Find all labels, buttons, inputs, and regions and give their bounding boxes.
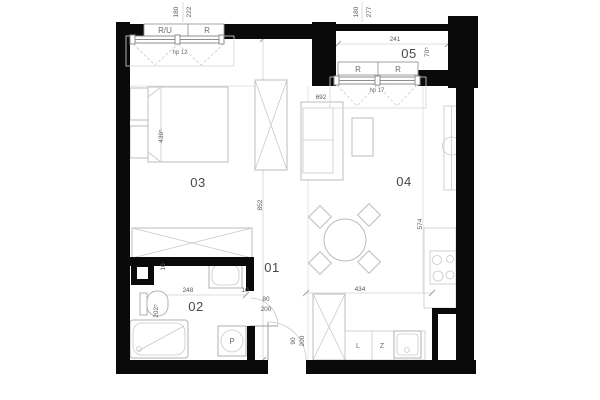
cabinet-l-label: L [356, 343, 360, 350]
room-label-bedroom: 03 [190, 175, 205, 190]
dining-table [324, 219, 366, 261]
room-label-living: 04 [396, 174, 411, 189]
chair [358, 204, 381, 227]
wall-pillar [312, 22, 336, 86]
wall-bottom-b [306, 360, 476, 374]
nightstand-bottom [130, 126, 148, 158]
window2-label-right: R [395, 65, 401, 74]
bedroom-furniture [130, 80, 287, 258]
kitchen-cabinet-tall [313, 294, 345, 360]
room-label-loggia: 05 [401, 46, 416, 61]
door-entry-height: 200 [299, 335, 306, 346]
wall-right [456, 86, 474, 374]
door-entry-width: 90 [290, 337, 297, 345]
kitchen-counter-right [424, 228, 456, 308]
dim-bed: 439⁵ [158, 129, 165, 143]
wall-bath-right-lower [247, 326, 255, 360]
wall-bath-right-upper [246, 257, 254, 291]
nightstand-top [130, 88, 148, 120]
chair [309, 206, 332, 229]
dim-hall-height: 852 [257, 199, 264, 210]
dim-wall-right: 10 [241, 287, 249, 294]
window1-label-right: R [204, 26, 210, 35]
wall-stub-window [418, 70, 460, 86]
dim-living-height: 574 [417, 218, 424, 229]
room-label-bath: 02 [188, 299, 203, 314]
dining-set [309, 204, 381, 275]
window2-dim2: 277 [366, 6, 373, 17]
chair [309, 252, 332, 275]
washing-machine: P [218, 326, 246, 356]
dim-wall-left: 10 [160, 263, 167, 271]
window2-label-left: R [355, 65, 361, 74]
wall-bottom-a [116, 360, 268, 374]
window1-dim1: 180 [173, 6, 180, 17]
shaft-inner [137, 267, 148, 279]
dim-loggia-depth: 70⁵ [424, 47, 431, 57]
window2-dim1: 180 [353, 6, 360, 17]
bed [148, 87, 228, 162]
window-bedroom: R/U R hp 12 180 222 [126, 6, 234, 66]
window2-hp: hp 17 [369, 88, 385, 94]
window1-hp: hp 12 [172, 50, 188, 56]
wall-left [116, 22, 130, 374]
kitchen-sink [394, 331, 421, 358]
wall-loggia-top [336, 24, 450, 31]
cabinet-z-label: Z [380, 343, 385, 350]
dim-bath-width: 248 [183, 287, 194, 294]
window1-label-left: R/U [158, 26, 172, 35]
cabinet-labels: L Z [356, 343, 385, 350]
washer-label: P [229, 337, 234, 346]
dim-kitchen-width: 434 [355, 286, 366, 293]
door-bath-height: 200 [261, 306, 272, 313]
dim-sofa: 692 [316, 94, 327, 101]
sofa [301, 102, 343, 180]
cooktop [430, 251, 456, 284]
floor-plan-drawing: P R/U R [0, 0, 600, 400]
niche-inner [438, 314, 456, 360]
dim-loggia-width: 241 [390, 36, 401, 43]
wall-top-b [224, 24, 312, 39]
side-table [352, 118, 373, 156]
floor-plan: P R/U R [0, 0, 600, 400]
wardrobe-tall [255, 80, 287, 170]
dim-bath-height: 202⁵ [153, 304, 160, 318]
room-label-hall: 01 [264, 260, 279, 275]
window1-dim2: 222 [186, 6, 193, 17]
doors [250, 298, 306, 360]
door-bath-width: 80 [262, 296, 270, 303]
wall-niche-left [432, 308, 438, 360]
wardrobe-low [132, 228, 252, 258]
bathtub [130, 320, 188, 358]
living-furniture [301, 102, 461, 274]
